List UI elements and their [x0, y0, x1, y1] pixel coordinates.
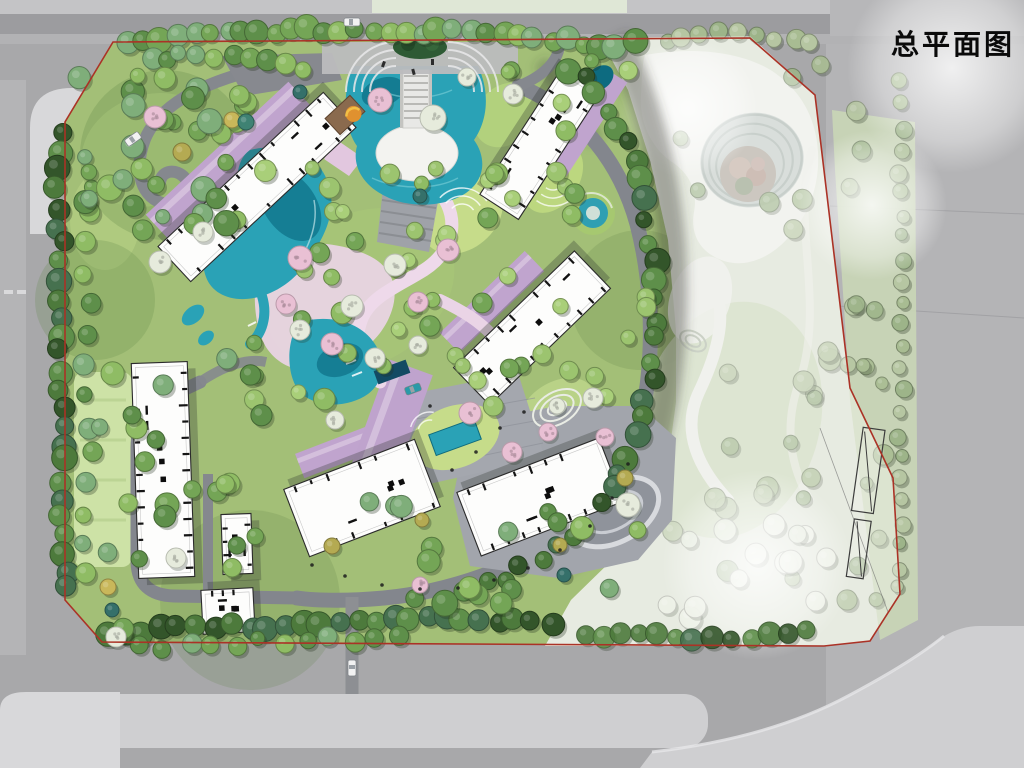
lamp-dot	[558, 548, 562, 552]
bottom-sidewalk	[36, 694, 708, 748]
lamp-dot	[492, 578, 496, 582]
crosswalk-mark	[4, 290, 13, 294]
top-median-green	[372, 0, 627, 13]
car	[344, 18, 360, 26]
lamp-dot	[343, 574, 347, 578]
lamp-dot	[522, 410, 526, 414]
white-haze	[797, 130, 947, 280]
lamp-dot	[526, 566, 530, 570]
master-plan-page: 总平面图	[0, 0, 1024, 768]
lamp-dot	[428, 404, 432, 408]
lamp-dot	[418, 587, 422, 591]
master-plan-drawing	[0, 0, 1024, 768]
lamp-dot	[610, 496, 614, 500]
corner-sidewalk-bottomleft	[0, 692, 120, 768]
lamp-dot	[474, 450, 478, 454]
left-sidewalk	[0, 80, 26, 655]
lamp-dot	[310, 563, 314, 567]
lamp-dot	[456, 586, 460, 590]
lamp-dot	[588, 524, 592, 528]
lamp-dot	[380, 583, 384, 587]
page-title: 总平面图	[891, 31, 1015, 59]
lamp-dot	[498, 426, 502, 430]
lamp-dot	[450, 468, 454, 472]
crosswalk-mark	[17, 290, 26, 294]
car	[348, 660, 356, 676]
lamp-dot	[626, 462, 630, 466]
